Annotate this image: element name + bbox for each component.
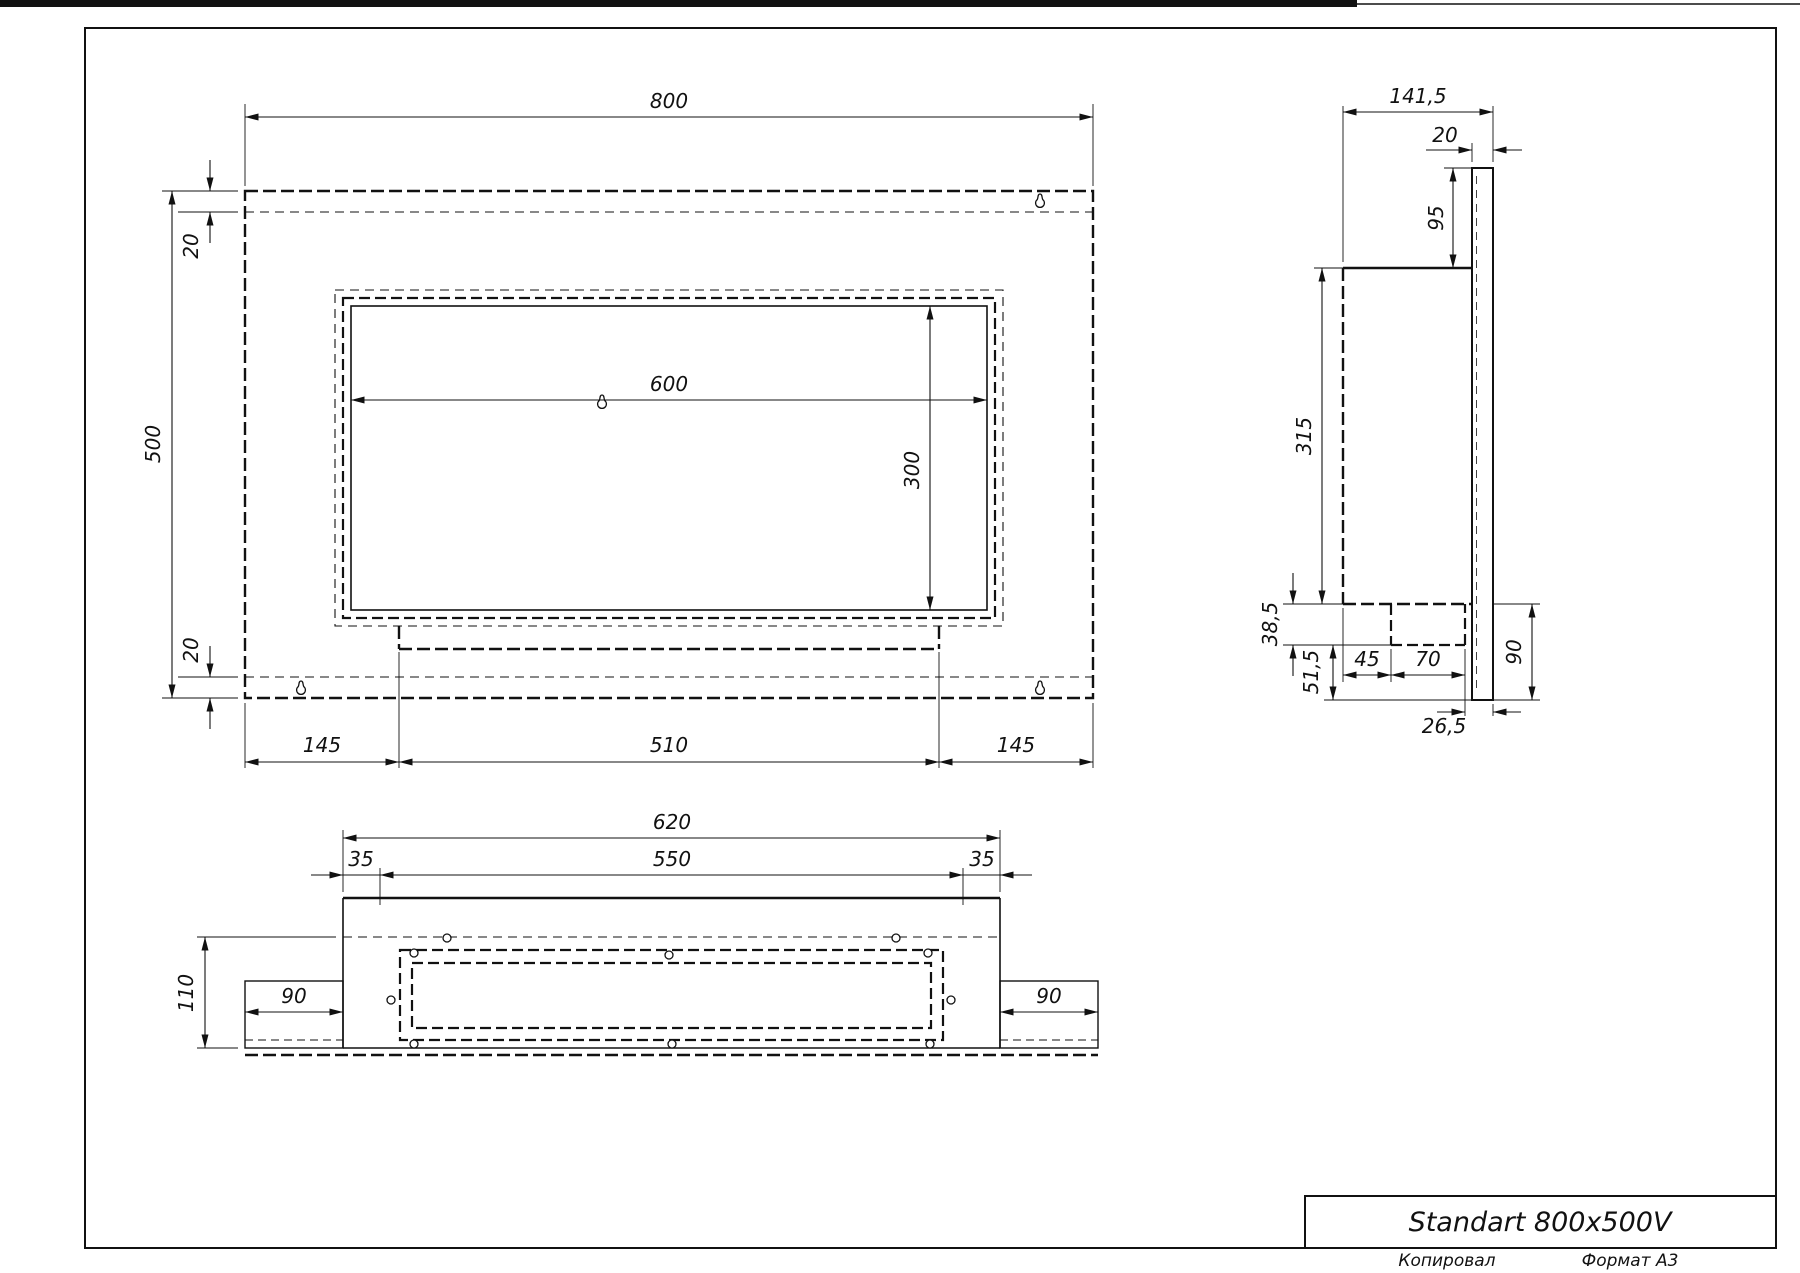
side-view: 141,5 20 95 315 38,5 51,5 45 70 <box>1258 84 1540 738</box>
drawing-title: Standart 800x500V <box>1409 1207 1674 1238</box>
screw-hole <box>892 934 900 942</box>
screw-hole <box>443 934 451 942</box>
dim-bottom-margin-right: 35 <box>969 847 994 871</box>
screw-hole <box>410 1040 418 1048</box>
dim-side-back-gap: 26,5 <box>1422 714 1467 738</box>
keyhole-mount-icon <box>598 395 607 408</box>
keyhole-mount-icon <box>297 681 306 694</box>
dim-side-plate-bottom: 90 <box>1502 639 1526 664</box>
drawing-border <box>85 28 1776 1248</box>
dim-side-body-height: 315 <box>1292 417 1316 455</box>
title-block: Standart 800x500V Копировал Формат А3 <box>1305 1196 1776 1271</box>
dim-bottom-flange-right: 90 <box>1036 984 1061 1008</box>
drawing-sheet: 800 500 20 20 600 300 145 510 145 <box>0 0 1800 1273</box>
dim-bottom-flange-left: 90 <box>281 984 306 1008</box>
dim-bottom-inner-width: 550 <box>653 847 691 871</box>
dim-side-burner-width: 70 <box>1415 647 1440 671</box>
dim-front-margin-top: 20 <box>179 233 203 258</box>
dim-side-top-offset: 95 <box>1424 205 1448 230</box>
footer-copied-label: Копировал <box>1398 1251 1495 1271</box>
dim-side-burner-depth: 38,5 <box>1258 602 1282 647</box>
screw-hole <box>387 996 395 1004</box>
dim-bottom-margin-left: 35 <box>348 847 373 871</box>
dim-front-left-offset: 145 <box>303 733 341 757</box>
dim-side-depth: 141,5 <box>1389 84 1446 108</box>
front-view: 800 500 20 20 600 300 145 510 145 <box>141 89 1093 768</box>
dim-side-burner-front-offset: 45 <box>1354 647 1379 671</box>
dim-front-tray-width: 510 <box>650 733 688 757</box>
dim-side-bottom-offset: 51,5 <box>1299 650 1323 695</box>
front-opening-glass <box>351 306 987 610</box>
sheet-frame <box>0 0 1800 1248</box>
dim-front-right-offset: 145 <box>997 733 1035 757</box>
keyhole-mount-icon <box>1036 194 1045 207</box>
dim-front-opening-width: 600 <box>650 372 688 396</box>
front-body-outline <box>245 191 1093 698</box>
keyhole-mount-icon <box>1036 681 1045 694</box>
front-opening-mid <box>343 298 995 618</box>
dim-front-opening-height: 300 <box>900 451 924 489</box>
screw-hole <box>410 949 418 957</box>
screw-hole <box>665 951 673 959</box>
dim-bottom-outer-width: 620 <box>653 810 691 834</box>
dim-front-height: 500 <box>141 425 165 463</box>
dim-front-margin-bottom: 20 <box>179 637 203 662</box>
dim-front-width: 800 <box>650 89 688 113</box>
sheet-top-bar <box>0 0 1357 7</box>
screw-hole <box>668 1040 676 1048</box>
drawing-canvas: 800 500 20 20 600 300 145 510 145 <box>0 0 1800 1273</box>
bottom-opening-inner <box>412 963 931 1028</box>
screw-hole <box>924 949 932 957</box>
footer-format-label: Формат А3 <box>1582 1251 1679 1271</box>
side-wall-plate <box>1472 168 1493 700</box>
screw-hole <box>947 996 955 1004</box>
dim-bottom-depth: 110 <box>174 974 198 1012</box>
bottom-view: 620 550 35 35 110 90 90 <box>174 810 1098 1055</box>
screw-hole <box>926 1040 934 1048</box>
dim-side-plate-thickness: 20 <box>1432 123 1457 147</box>
